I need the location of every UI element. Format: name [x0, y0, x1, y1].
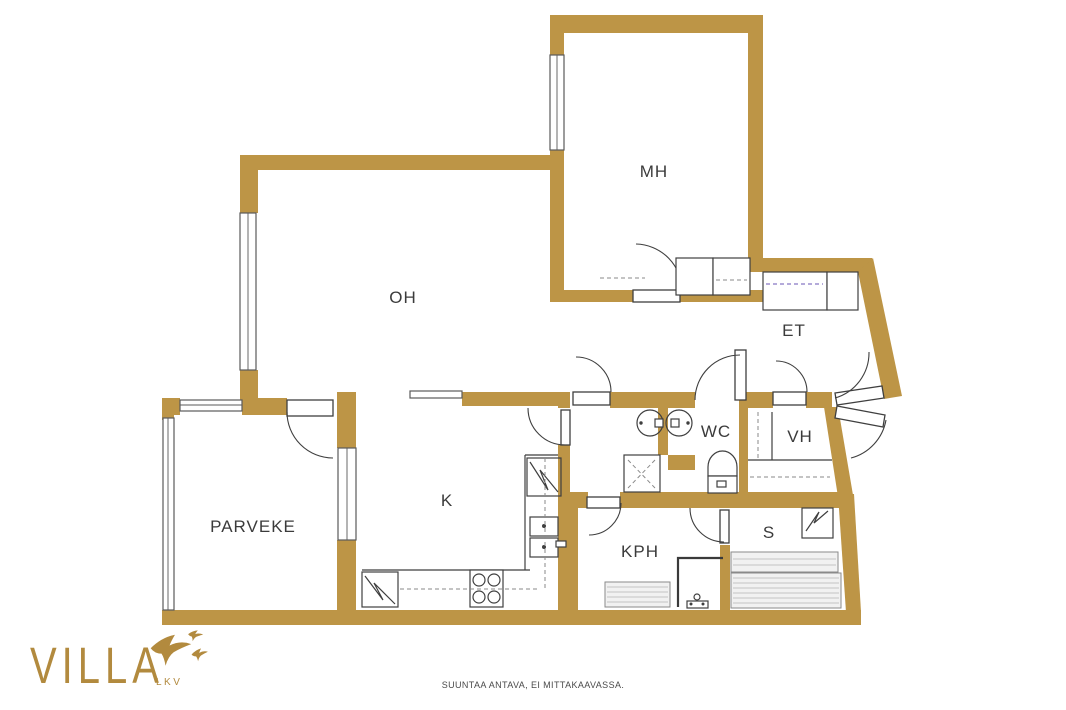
wall	[806, 392, 832, 408]
room-label-wc: WC	[701, 422, 731, 441]
room-label-vh: VH	[787, 427, 813, 446]
wall-slanted	[858, 258, 902, 399]
sauna-bench	[731, 573, 841, 608]
wall	[240, 370, 258, 400]
wall	[550, 290, 633, 302]
wall	[558, 445, 570, 497]
window	[180, 400, 242, 411]
wall	[550, 15, 763, 33]
shower-icon	[605, 582, 670, 607]
wall	[748, 258, 872, 272]
toilet-icon	[708, 451, 737, 493]
wall	[240, 170, 258, 213]
wall	[162, 398, 174, 420]
sink-icon	[637, 410, 663, 436]
closet	[676, 258, 713, 295]
sauna-bench	[731, 552, 838, 572]
wall	[337, 540, 356, 612]
closet	[827, 272, 858, 310]
fridge-icon	[362, 572, 398, 607]
door-sauna	[690, 508, 729, 543]
wall	[739, 392, 748, 497]
door-wc	[695, 350, 746, 400]
kitchen-group	[362, 455, 566, 607]
door-utility	[573, 357, 611, 405]
fridge-icon	[527, 458, 561, 496]
closet	[713, 258, 750, 295]
glass-partition	[410, 391, 462, 398]
wall	[668, 455, 695, 470]
room-label-parveke: PARVEKE	[210, 517, 296, 536]
room-label-k: K	[441, 491, 453, 510]
room-label-et: ET	[782, 321, 806, 340]
wall	[337, 392, 356, 448]
room-label-s: S	[763, 523, 775, 542]
wall	[748, 15, 763, 272]
wall	[162, 610, 861, 625]
wall	[550, 150, 564, 302]
room-label-kph: KPH	[621, 542, 659, 561]
window	[240, 213, 256, 370]
wall	[240, 155, 563, 170]
closet	[763, 272, 827, 310]
door-mh	[633, 244, 682, 302]
sauna-heater-icon	[802, 508, 833, 538]
disclaimer-text: SUUNTAA ANTAVA, EI MITTAKAAVASSA.	[0, 680, 1066, 690]
door-kph	[587, 497, 621, 535]
wall	[558, 392, 570, 408]
shower-mixer-icon	[687, 594, 708, 608]
sauna-group	[731, 508, 841, 608]
sink-icon	[666, 410, 692, 436]
wall	[462, 392, 570, 406]
door-kitchen	[528, 408, 570, 445]
floor-plan-canvas: OH MH ET K PARVEKE KPH WC VH S	[0, 0, 1066, 710]
room-label-oh: OH	[389, 288, 417, 307]
window	[338, 448, 356, 540]
window	[163, 418, 174, 610]
room-label-mh: MH	[640, 162, 668, 181]
wall	[620, 492, 850, 508]
window	[550, 55, 564, 150]
kitchen-counter	[362, 455, 558, 570]
shower-partition	[678, 558, 723, 607]
floor-plan-page: OH MH ET K PARVEKE KPH WC VH S VILLA LKV…	[0, 0, 1066, 710]
door-vh	[773, 361, 807, 405]
wall	[558, 497, 578, 610]
wall	[720, 545, 730, 612]
wall	[242, 398, 287, 415]
appliance-icon	[624, 455, 660, 492]
door-balcony	[287, 400, 333, 458]
wall	[610, 392, 695, 408]
